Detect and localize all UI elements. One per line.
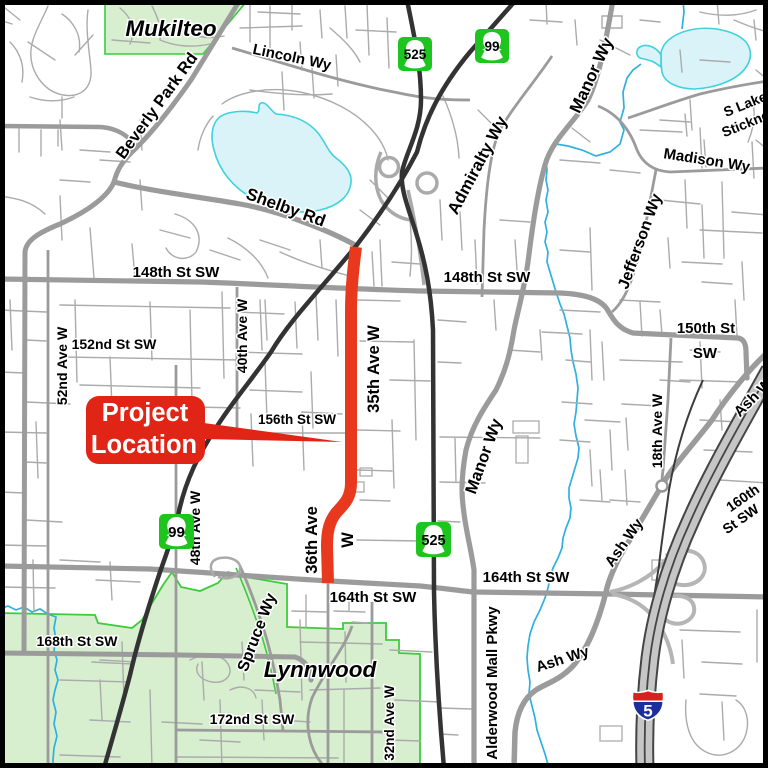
svg-text:164th St SW: 164th St SW xyxy=(330,589,418,606)
svg-text:148th St SW: 148th St SW xyxy=(444,269,532,286)
svg-text:35th Ave W: 35th Ave W xyxy=(365,325,383,413)
svg-text:152nd St SW: 152nd St SW xyxy=(72,336,158,352)
svg-text:525: 525 xyxy=(404,47,427,62)
svg-text:36th Ave: 36th Ave xyxy=(303,506,321,574)
svg-text:150th St: 150th St xyxy=(677,320,735,337)
svg-text:32nd Ave W: 32nd Ave W xyxy=(382,685,397,761)
svg-text:99: 99 xyxy=(484,39,499,54)
svg-text:Mukilteo: Mukilteo xyxy=(125,16,217,41)
svg-text:164th St SW: 164th St SW xyxy=(483,569,571,586)
svg-text:Lynnwood: Lynnwood xyxy=(264,657,378,682)
svg-text:Location: Location xyxy=(91,431,197,459)
svg-text:172nd St SW: 172nd St SW xyxy=(210,711,296,727)
svg-text:168th St SW: 168th St SW xyxy=(37,633,119,649)
svg-text:5: 5 xyxy=(643,702,652,721)
svg-text:156th St SW: 156th St SW xyxy=(258,412,336,427)
svg-text:52nd Ave W: 52nd Ave W xyxy=(54,326,70,405)
svg-text:SW: SW xyxy=(693,345,718,362)
svg-text:Project: Project xyxy=(102,399,189,427)
svg-text:525: 525 xyxy=(421,533,445,549)
svg-text:99: 99 xyxy=(168,524,185,541)
svg-text:40th Ave W: 40th Ave W xyxy=(234,298,250,373)
svg-text:148th St SW: 148th St SW xyxy=(133,264,221,281)
svg-text:W: W xyxy=(339,532,357,548)
svg-text:Alderwood Mall Pkwy: Alderwood Mall Pkwy xyxy=(484,606,501,760)
svg-text:18th Ave W: 18th Ave W xyxy=(649,393,665,468)
